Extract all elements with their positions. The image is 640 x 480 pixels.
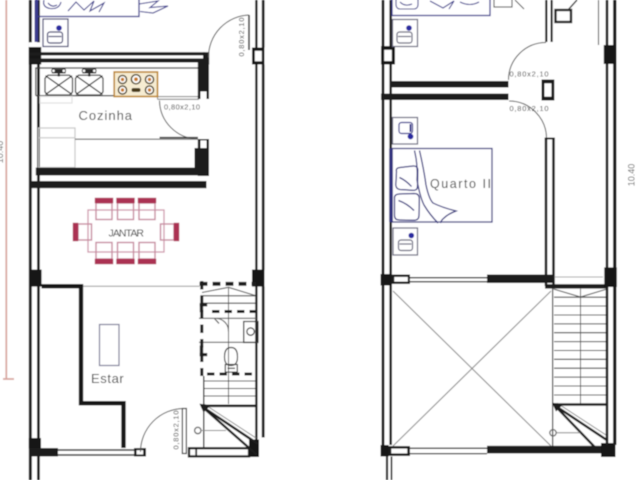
svg-text:0,80x2,10: 0,80x2,10: [510, 104, 549, 113]
svg-text:Cozinha: Cozinha: [79, 108, 133, 123]
svg-text:10.40: 10.40: [0, 141, 5, 164]
svg-text:0,80x2,10: 0,80x2,10: [510, 70, 549, 79]
svg-text:10.40: 10.40: [627, 164, 637, 187]
svg-text:0,80x2,10: 0,80x2,10: [172, 411, 181, 450]
svg-text:0,80x2,10: 0,80x2,10: [164, 103, 200, 112]
svg-text:Quarto II: Quarto II: [430, 177, 491, 191]
svg-text:0,80x2,10: 0,80x2,10: [237, 18, 246, 57]
svg-text:JANTAR: JANTAR: [109, 228, 145, 240]
svg-text:Estar: Estar: [91, 371, 124, 386]
